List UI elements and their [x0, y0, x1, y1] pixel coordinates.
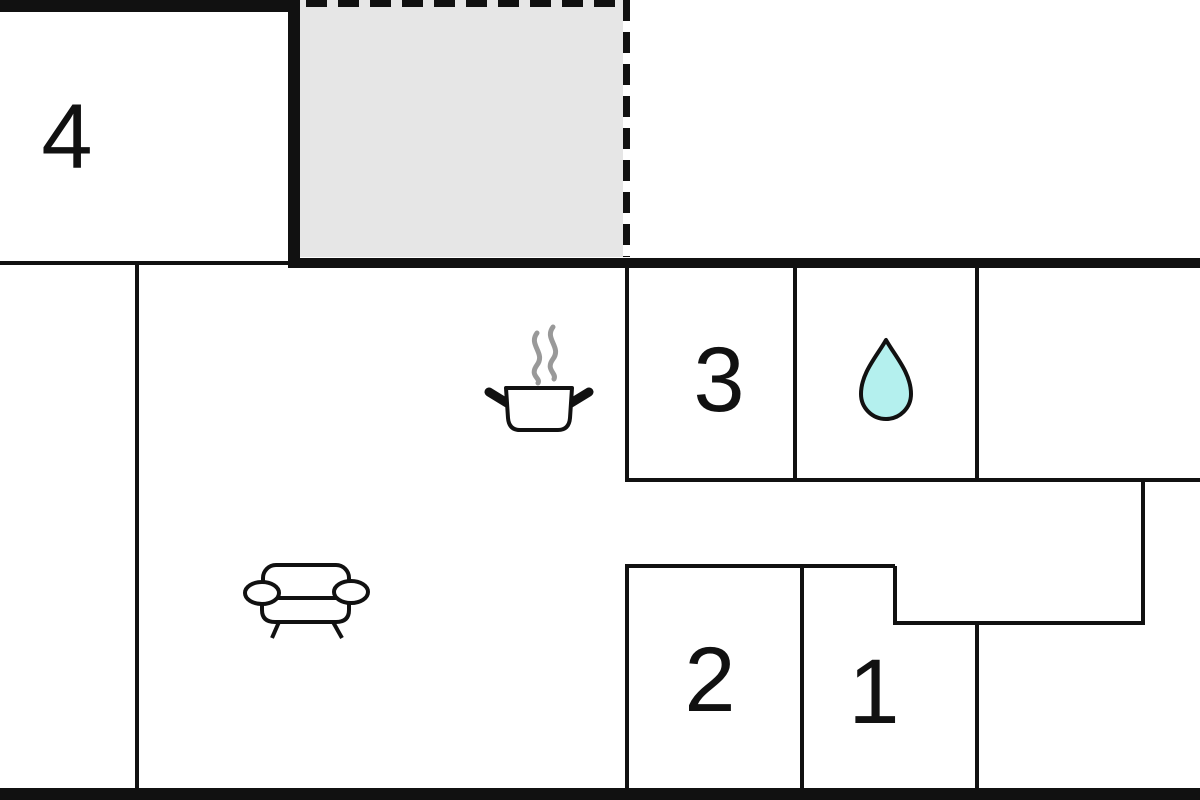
interior-walls: [0, 263, 1200, 788]
pot-handle-left: [489, 392, 507, 403]
room-label-4: 4: [41, 91, 92, 183]
sofa-leg-right: [333, 622, 342, 638]
floor-plan: 4 3 2 1: [0, 0, 1200, 800]
room-label-2: 2: [684, 634, 735, 726]
exterior-wall-top: [0, 0, 300, 12]
exterior-wall-middle: [295, 258, 1200, 268]
exterior-wall-bottom: [0, 788, 1200, 800]
sofa-armrest-left: [245, 582, 279, 604]
room-label-1: 1: [848, 646, 899, 738]
pot-body: [506, 388, 572, 430]
exterior-wall-room4-right: [288, 0, 300, 268]
pot-handle-right: [571, 392, 589, 403]
sofa-armrest-right: [334, 581, 368, 603]
floor-plan-drawing: [0, 0, 1200, 800]
steam-icon: [534, 327, 555, 383]
room-label-3: 3: [693, 334, 744, 426]
cooking-pot-icon: [489, 327, 589, 430]
sofa-leg-left: [272, 622, 279, 638]
sofa-icon: [245, 565, 368, 638]
terrace-area: [300, 0, 630, 257]
water-drop-icon: [861, 340, 911, 419]
steam-wave-left: [534, 333, 539, 383]
steam-wave-right: [550, 327, 555, 379]
terrace-fill: [300, 0, 623, 257]
